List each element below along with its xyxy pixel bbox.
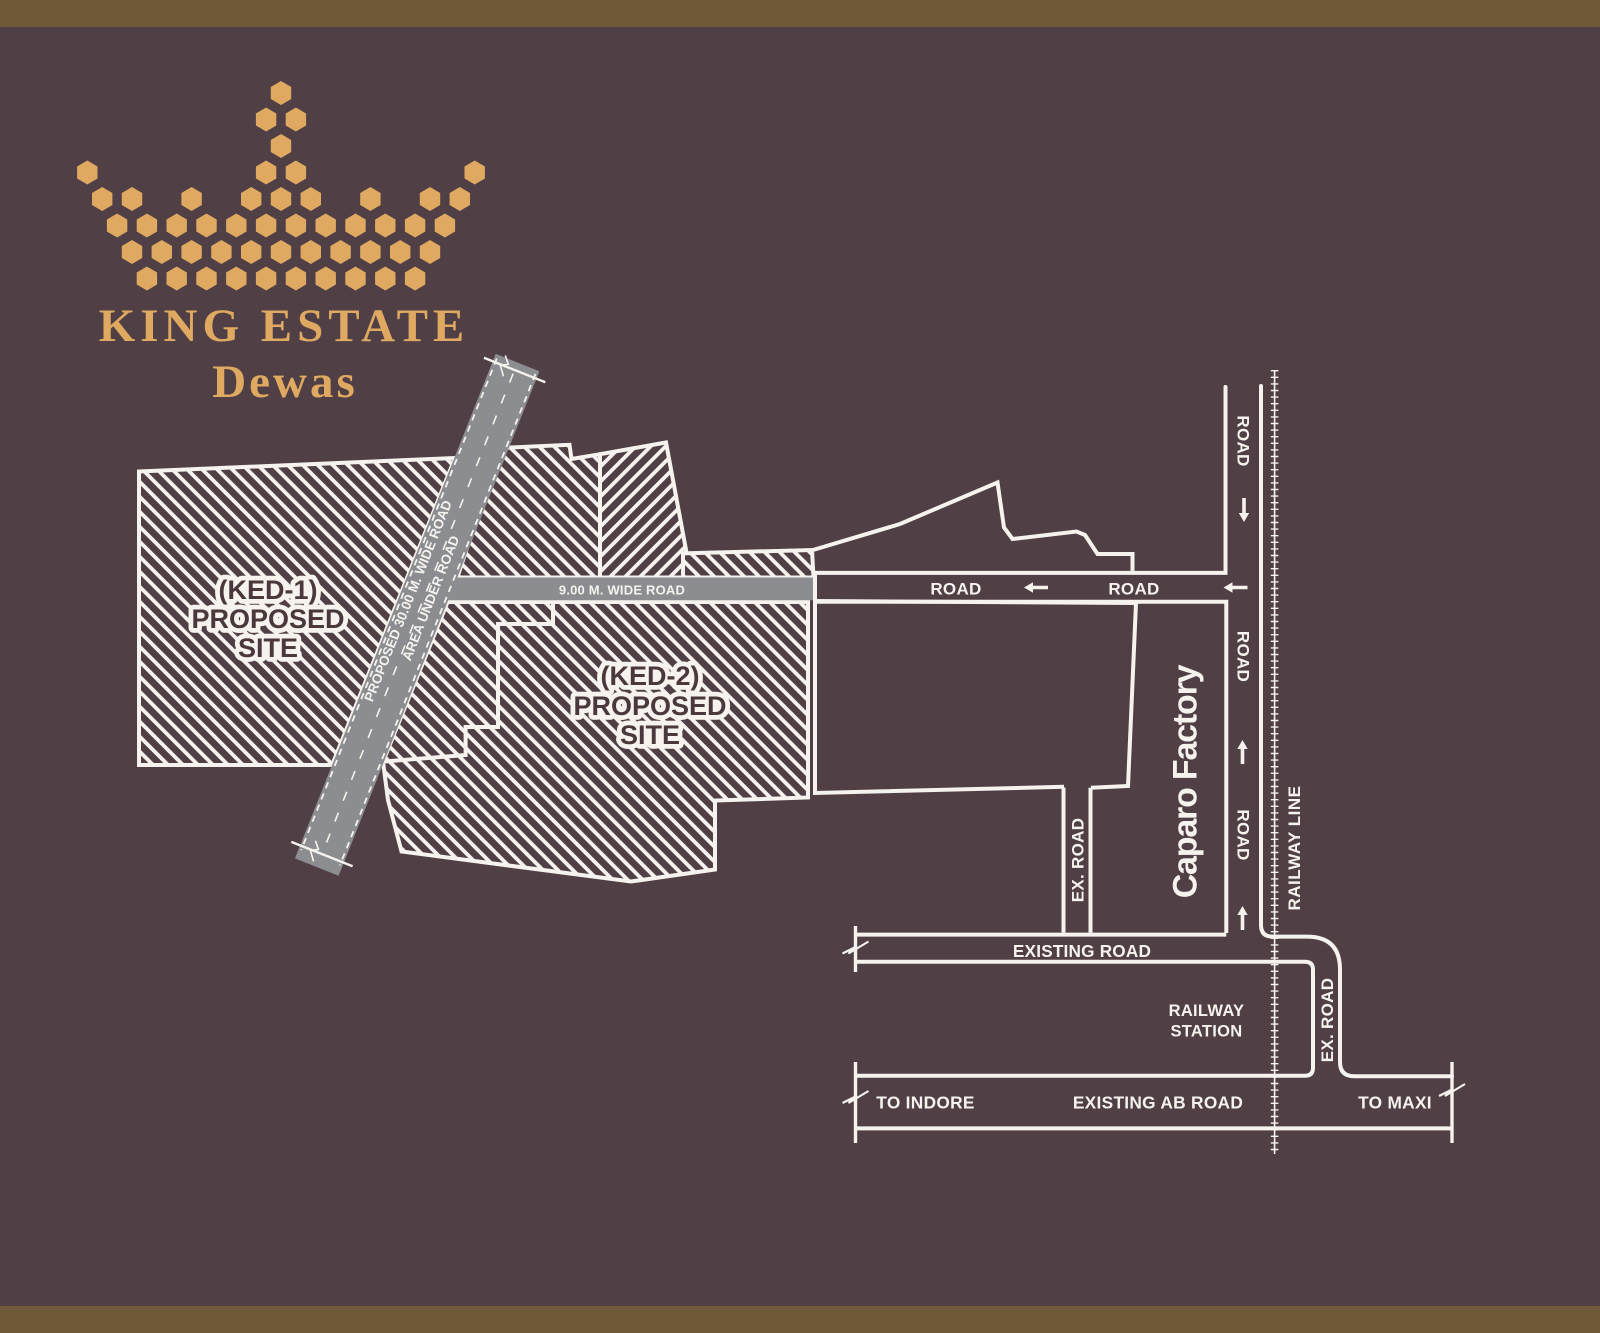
svg-text:EXISTING AB ROAD: EXISTING AB ROAD [1073, 1093, 1243, 1113]
svg-text:SITE: SITE [620, 720, 680, 750]
svg-text:ROAD: ROAD [1233, 631, 1252, 682]
svg-text:ROAD: ROAD [1108, 580, 1159, 599]
svg-text:ROAD: ROAD [1233, 415, 1252, 466]
svg-text:ROAD: ROAD [930, 580, 981, 599]
svg-text:EX. ROAD: EX. ROAD [1068, 818, 1087, 903]
svg-text:KING ESTATE: KING ESTATE [99, 300, 470, 352]
svg-text:RAILWAY: RAILWAY [1169, 1002, 1245, 1020]
svg-text:STATION: STATION [1170, 1023, 1242, 1041]
svg-text:(KED-2): (KED-2) [601, 661, 700, 691]
svg-text:EXISTING ROAD: EXISTING ROAD [1013, 941, 1151, 961]
svg-text:TO MAXI: TO MAXI [1358, 1093, 1432, 1113]
svg-text:(KED-1): (KED-1) [219, 575, 318, 605]
svg-text:TO INDORE: TO INDORE [876, 1093, 974, 1113]
svg-text:Caparo Factory: Caparo Factory [1167, 664, 1205, 898]
svg-text:EX. ROAD: EX. ROAD [1318, 978, 1337, 1063]
svg-text:SITE: SITE [238, 633, 298, 663]
svg-text:PROPOSED: PROPOSED [573, 691, 726, 721]
svg-text:PROPOSED: PROPOSED [191, 604, 344, 634]
svg-text:ROAD: ROAD [1233, 809, 1252, 860]
svg-text:9.00 M. WIDE ROAD: 9.00 M. WIDE ROAD [559, 582, 685, 597]
svg-text:Dewas: Dewas [212, 356, 358, 408]
svg-text:RAILWAY LINE: RAILWAY LINE [1285, 785, 1304, 910]
